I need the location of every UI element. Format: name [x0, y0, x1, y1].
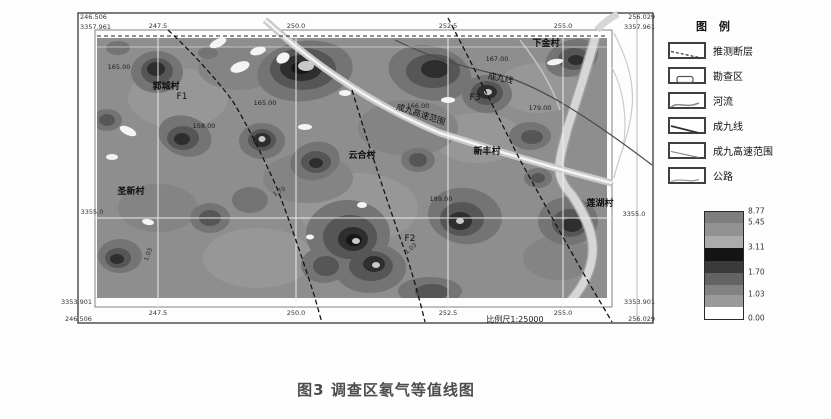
- road-symbol-icon: [668, 167, 706, 184]
- legend-item-label: 公路: [713, 168, 733, 183]
- survey-area-symbol-icon: [668, 67, 706, 84]
- grid-x-label-bottom: 247.5: [149, 309, 168, 317]
- corner-coordinate: 3353.901: [61, 298, 92, 306]
- map-panel: 246.506 3357.961 256.029 3357.961 3353.9…: [58, 8, 658, 328]
- legend-item-label: 成九线: [713, 118, 743, 133]
- river-symbol-icon: [668, 92, 706, 109]
- elevation-label: 165.00: [108, 63, 131, 71]
- radon-color-scale: [704, 211, 744, 320]
- grid-x-label-bottom: 252.5: [439, 309, 458, 317]
- grid-x-label-top: 250.0: [287, 22, 306, 30]
- grid-x-label-bottom: 255.0: [554, 309, 573, 317]
- legend-title: 图 例: [696, 18, 828, 34]
- corner-coordinate: 3357.961: [624, 23, 655, 31]
- corner-coordinate: 256.029: [628, 13, 655, 21]
- colorbar-segment: [705, 261, 743, 273]
- colorbar-segment: [705, 285, 743, 296]
- figure-page: 246.506 3357.961 256.029 3357.961 3353.9…: [0, 0, 831, 419]
- colorbar-segment: [705, 212, 743, 223]
- colorbar-segment: [705, 273, 743, 285]
- colorbar-label: 0.00: [748, 314, 765, 323]
- legend-item-label: 河流: [713, 93, 733, 108]
- legend-item-label: 推测断层: [713, 43, 753, 58]
- map-scale-text: 比例尺1:25000: [486, 314, 543, 324]
- grid-y-label-right: 3355.0: [623, 210, 646, 218]
- colorbar-segment: [705, 248, 743, 261]
- corner-coordinate: 246.506: [65, 315, 92, 323]
- legend-item-fault: 推测断层: [668, 43, 828, 58]
- railway-symbol-icon: [668, 117, 706, 134]
- colorbar-segment: [705, 236, 743, 249]
- colorbar-segment: [705, 295, 743, 307]
- figure-caption: 图3 调查区氡气等值线图: [0, 379, 772, 400]
- colorbar-label: 1.70: [748, 267, 765, 276]
- colorbar-labels: 8.77 5.45 3.11 1.70 1.03 0.00: [748, 211, 788, 318]
- elevation-label: 167.00: [486, 55, 509, 63]
- elevation-label: 189.00: [430, 195, 453, 203]
- village-label: 新丰村: [473, 145, 500, 157]
- corner-coordinate: 256.029: [628, 315, 655, 323]
- grid-x-label-top: 252.5: [439, 22, 458, 30]
- corner-coordinate: 3357.961: [80, 23, 111, 31]
- colorbar-segment: [705, 307, 743, 319]
- grid-y-label-left: 3355.0: [81, 208, 104, 216]
- fault-label-f3: F3: [470, 93, 481, 103]
- elevation-label: 158.00: [193, 122, 216, 130]
- legend-panel: 图 例 推测断层 勘查区 河流 成九线: [668, 18, 828, 193]
- colorbar-label: 8.77: [748, 207, 765, 216]
- grid-x-label-bottom: 250.0: [287, 309, 306, 317]
- elevation-label: 166.00: [407, 102, 430, 110]
- colorbar-label: 5.45: [748, 217, 765, 226]
- legend-item-highway: 成九高速范围: [668, 143, 828, 158]
- grid-x-label-top: 247.5: [149, 22, 168, 30]
- village-label: 下金村: [532, 37, 559, 49]
- colorbar-label: 3.11: [748, 243, 765, 252]
- legend-item-label: 成九高速范围: [713, 143, 773, 158]
- legend-item-label: 勘查区: [713, 68, 743, 83]
- village-label: 莲湖村: [586, 197, 613, 209]
- colorbar-label: 1.03: [748, 290, 765, 299]
- village-label: 圣新村: [117, 185, 144, 197]
- fault-label-f1: F1: [177, 92, 188, 102]
- highway-symbol-icon: [668, 142, 706, 159]
- village-label: 郭城村: [152, 80, 179, 92]
- legend-item-railway: 成九线: [668, 118, 828, 133]
- inferred-fault-symbol-icon: [668, 42, 706, 59]
- grid-x-label-top: 255.0: [554, 22, 573, 30]
- colorbar-segment: [705, 223, 743, 236]
- village-label: 云合村: [348, 149, 375, 161]
- legend-item-road: 公路: [668, 168, 828, 183]
- legend-item-river: 河流: [668, 93, 828, 108]
- corner-coordinate: 246.506: [80, 13, 107, 21]
- corner-coordinate: 3353.901: [624, 298, 655, 306]
- legend-item-survey-area: 勘查区: [668, 68, 828, 83]
- elevation-label: 165.00: [254, 99, 277, 107]
- elevation-label: 179.00: [529, 104, 552, 112]
